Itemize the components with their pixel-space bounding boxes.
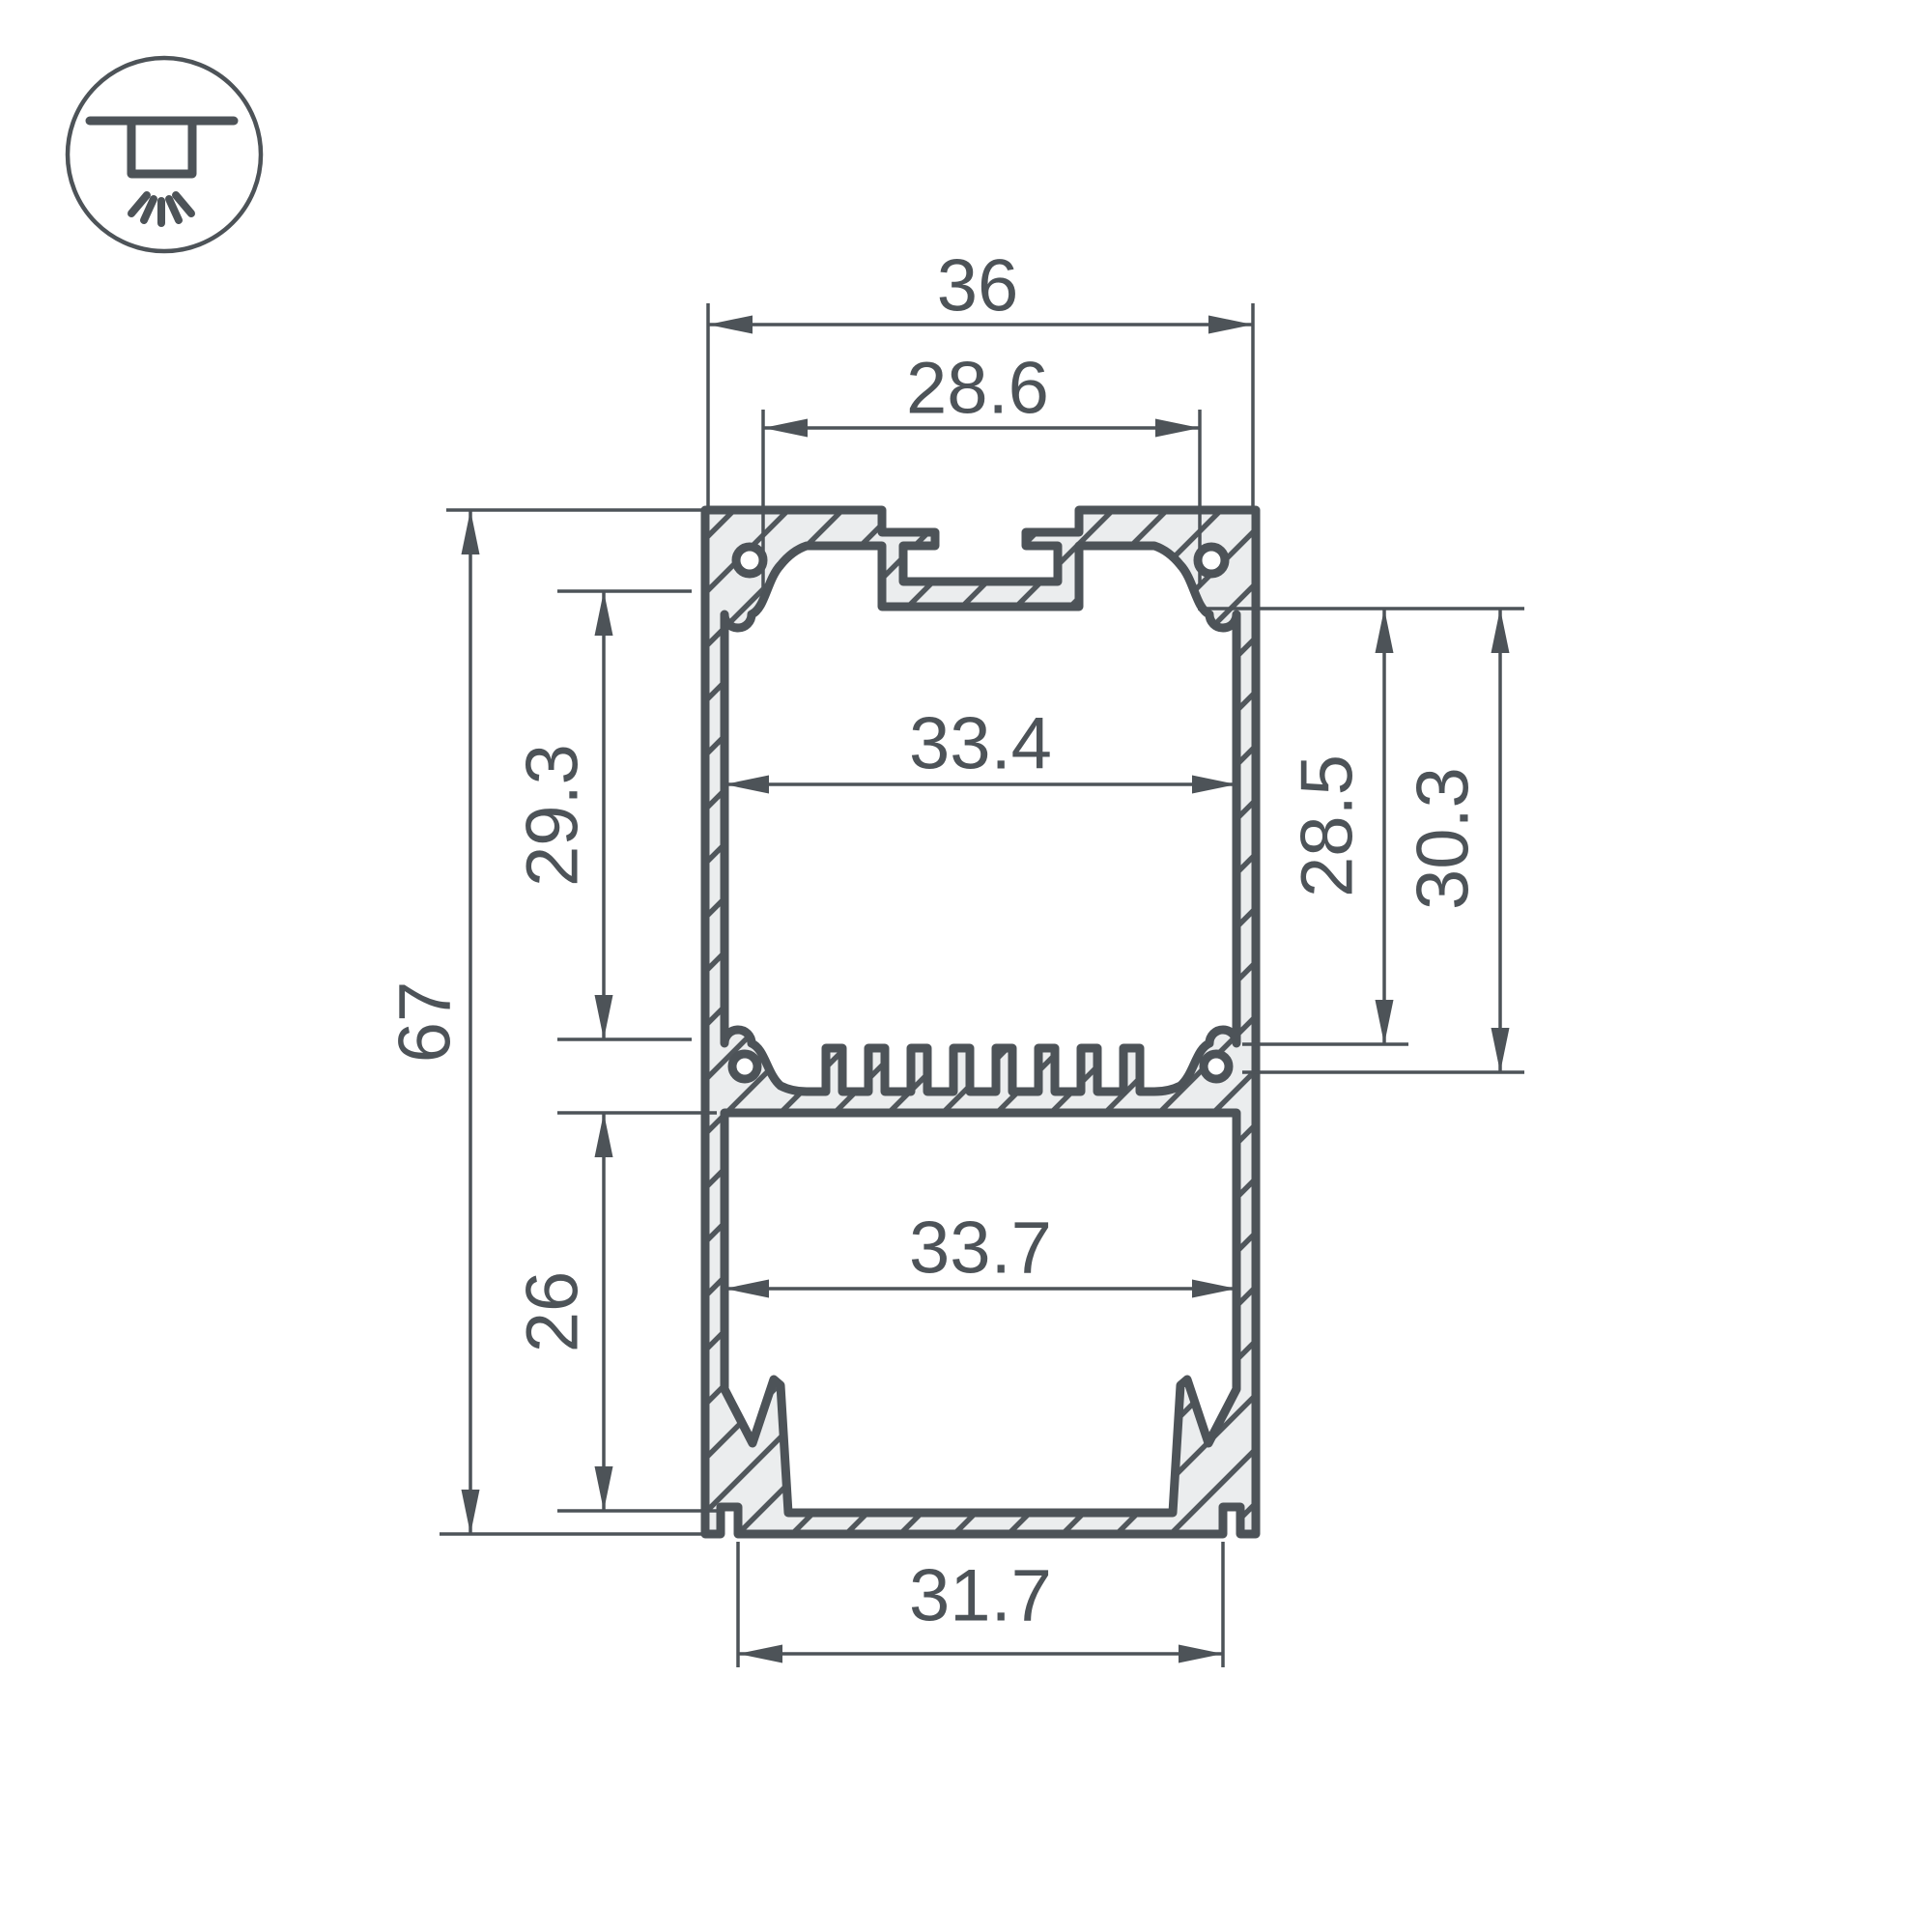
dimension-lines [470, 325, 1500, 1654]
dim-label-upper-inner-height-left: 29.3 [512, 744, 594, 887]
dim-label-upper-inner-height-right-max: 30.3 [1403, 767, 1485, 910]
dim-label-outer-width: 36 [937, 245, 1019, 327]
dim-label-total-height: 67 [384, 981, 467, 1064]
surface-ceiling-light-icon [90, 121, 234, 223]
profile-material-hatch-outline [705, 510, 1256, 1534]
profile-material-fill [705, 510, 1256, 1534]
dim-label-lower-inner-height: 26 [512, 1271, 594, 1353]
mount-type-icon [68, 58, 261, 251]
dim-label-upper-inner-width: 33.4 [909, 703, 1052, 785]
dim-label-upper-inner-height-right-min: 28.5 [1287, 754, 1369, 897]
profile-outline [705, 510, 1256, 1534]
dim-label-mount-slot-spacing: 28.6 [906, 348, 1049, 430]
dim-label-bottom-opening-width: 31.7 [909, 1555, 1052, 1637]
dimension-labels: 36 28.6 33.4 33.7 31.7 67 29.3 26 28.5 3… [384, 245, 1485, 1637]
profile-cross-section-drawing: 36 28.6 33.4 33.7 31.7 67 29.3 26 28.5 3… [0, 0, 1932, 1932]
dim-label-lower-inner-width: 33.7 [909, 1207, 1052, 1290]
